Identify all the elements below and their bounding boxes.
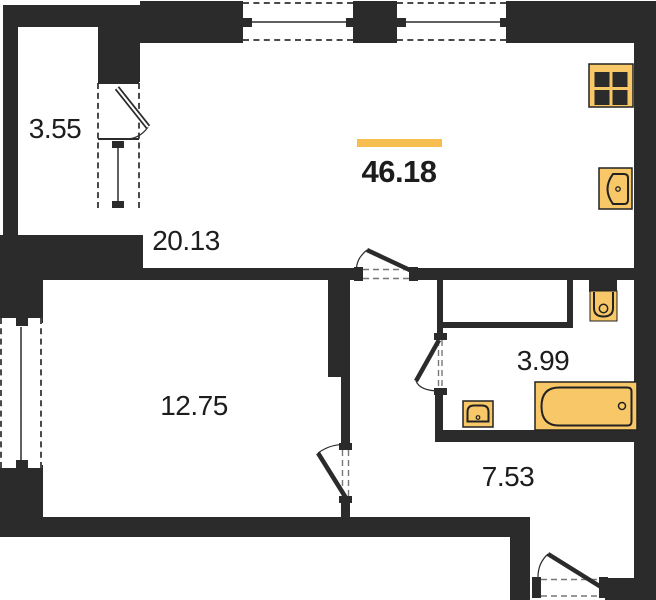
toilet-icon xyxy=(589,277,617,321)
entrance-door xyxy=(538,554,601,587)
room-area-label-balcony: 3.55 xyxy=(29,113,82,145)
floor-plan: 46.18 3.55 20.13 12.75 3.99 7.53 xyxy=(0,0,656,600)
room-area-label-bedroom: 12.75 xyxy=(160,390,228,422)
toilet-cistern xyxy=(589,277,617,292)
total-area-underline xyxy=(357,139,442,147)
total-area-label: 46.18 xyxy=(361,154,436,190)
kitchen-sink-icon xyxy=(599,168,632,209)
plan-linework xyxy=(0,0,656,600)
balcony-door xyxy=(117,88,148,139)
bathroom-door xyxy=(416,340,440,391)
room-area-label-bathroom: 3.99 xyxy=(517,345,570,377)
room-area-label-hallway: 7.53 xyxy=(482,461,535,493)
window-glass-lines xyxy=(21,22,502,460)
living-room-door xyxy=(357,250,415,272)
door-opening-dashes xyxy=(343,270,600,597)
bathroom-sink-icon xyxy=(463,401,493,427)
stove-icon xyxy=(589,64,633,107)
room-area-label-living: 20.13 xyxy=(152,225,220,257)
bathtub-icon xyxy=(535,382,637,430)
